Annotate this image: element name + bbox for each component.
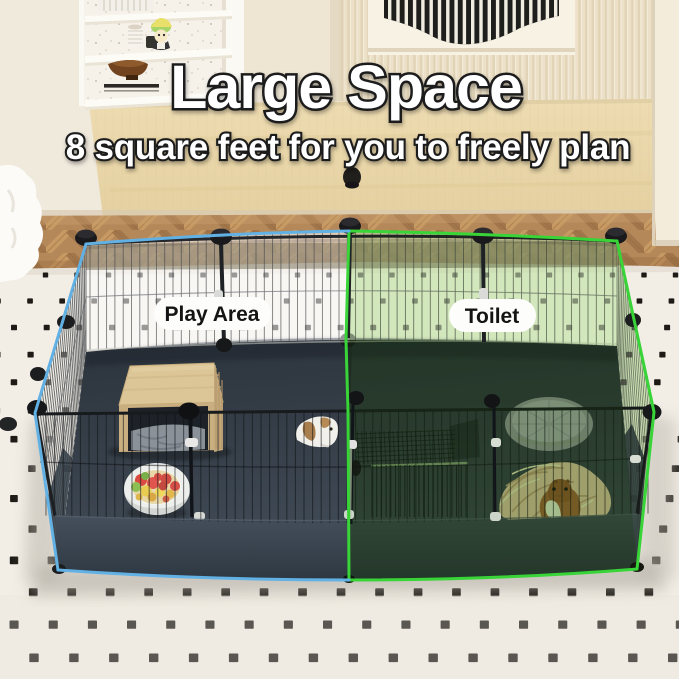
svg-text:Toilet: Toilet bbox=[465, 305, 519, 328]
svg-text:Play Area: Play Area bbox=[165, 303, 260, 326]
svg-text:8 square feet for you to freel: 8 square feet for you to freely plan bbox=[66, 128, 631, 167]
svg-text:Large Space: Large Space bbox=[170, 53, 522, 121]
